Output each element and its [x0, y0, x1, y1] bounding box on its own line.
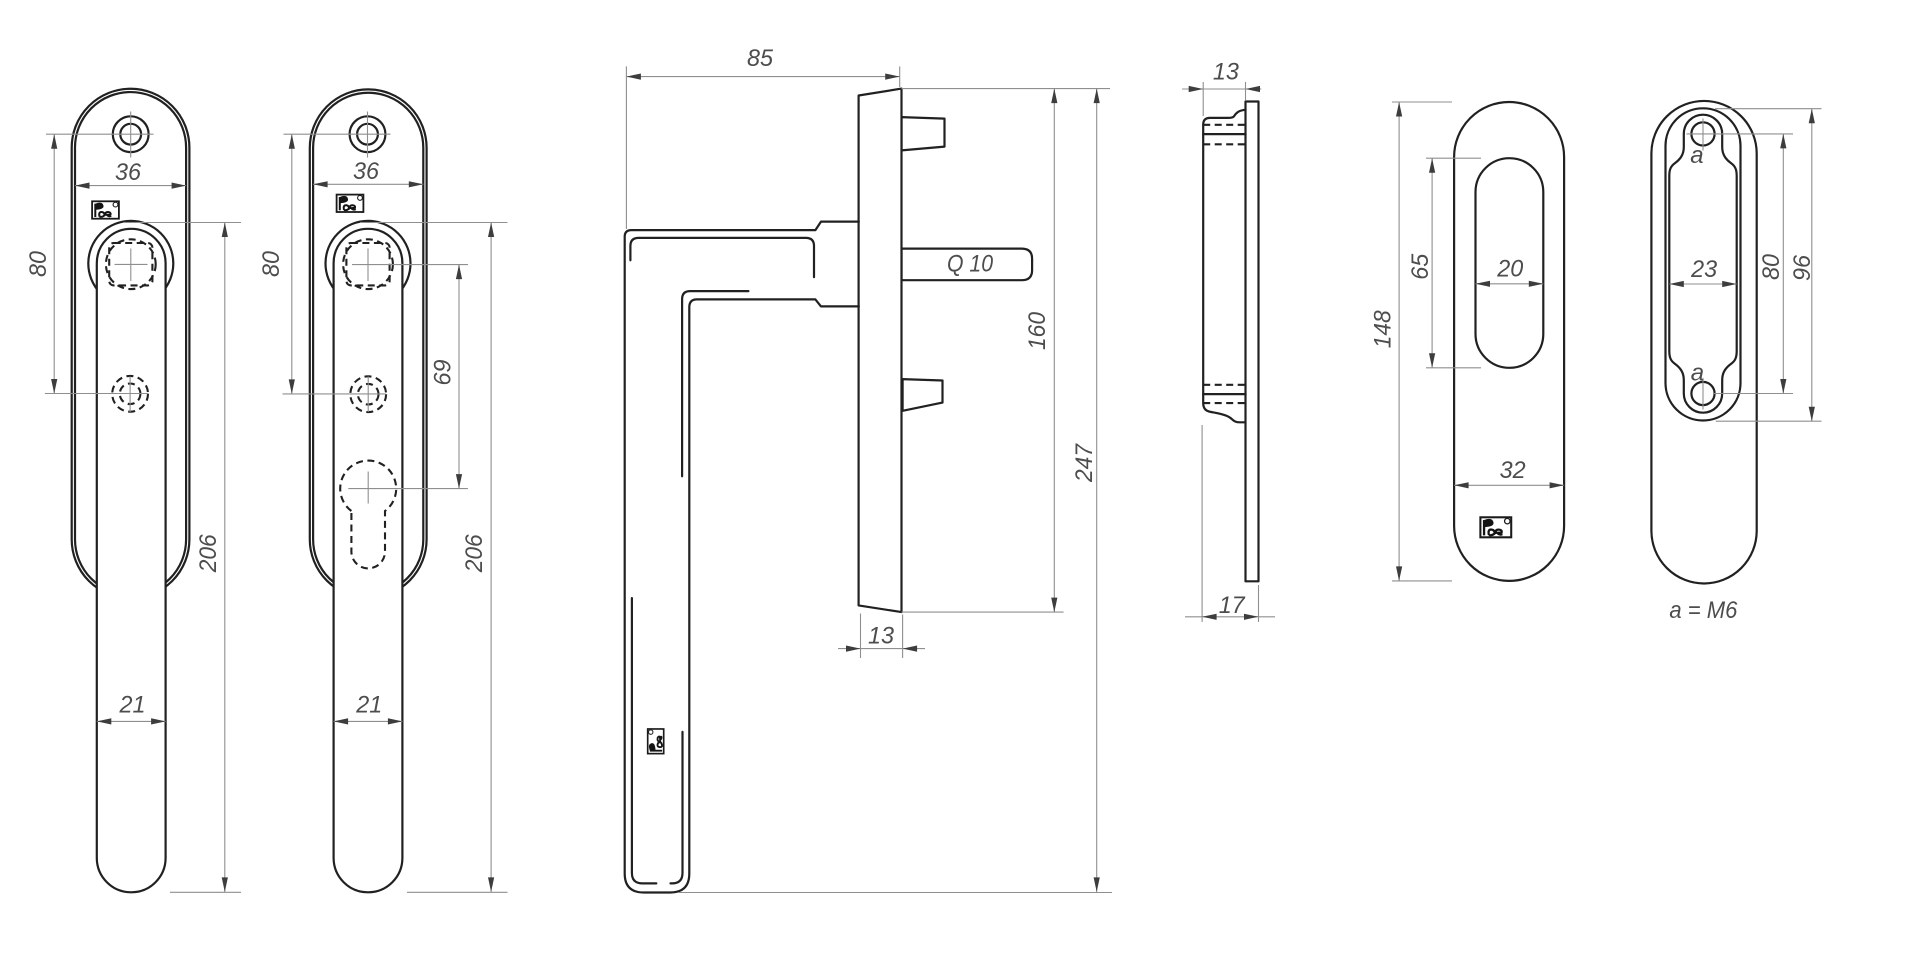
- svg-text:206: 206: [195, 534, 222, 574]
- svg-text:247: 247: [1071, 442, 1098, 483]
- svg-text:36: 36: [353, 158, 380, 185]
- svg-text:36: 36: [115, 159, 142, 186]
- svg-text:96: 96: [1789, 254, 1816, 281]
- svg-text:206: 206: [461, 534, 488, 574]
- svg-text:a = M6: a = M6: [1669, 597, 1738, 624]
- svg-text:17: 17: [1219, 592, 1247, 619]
- svg-text:32: 32: [1500, 457, 1526, 484]
- svg-text:Q 10: Q 10: [947, 251, 994, 278]
- svg-text:80: 80: [25, 250, 52, 277]
- svg-text:85: 85: [747, 45, 774, 72]
- svg-text:80: 80: [1758, 253, 1785, 280]
- svg-text:69: 69: [429, 360, 456, 386]
- svg-text:160: 160: [1024, 311, 1051, 350]
- svg-text:a: a: [1691, 360, 1704, 387]
- svg-text:80: 80: [258, 250, 285, 277]
- svg-text:148: 148: [1369, 310, 1396, 349]
- svg-text:23: 23: [1690, 256, 1718, 283]
- svg-text:21: 21: [355, 692, 382, 719]
- svg-text:20: 20: [1496, 256, 1524, 283]
- svg-text:13: 13: [868, 623, 895, 650]
- svg-text:65: 65: [1407, 253, 1434, 280]
- svg-text:a: a: [1690, 142, 1703, 169]
- svg-text:21: 21: [119, 692, 146, 719]
- svg-text:13: 13: [1213, 59, 1240, 86]
